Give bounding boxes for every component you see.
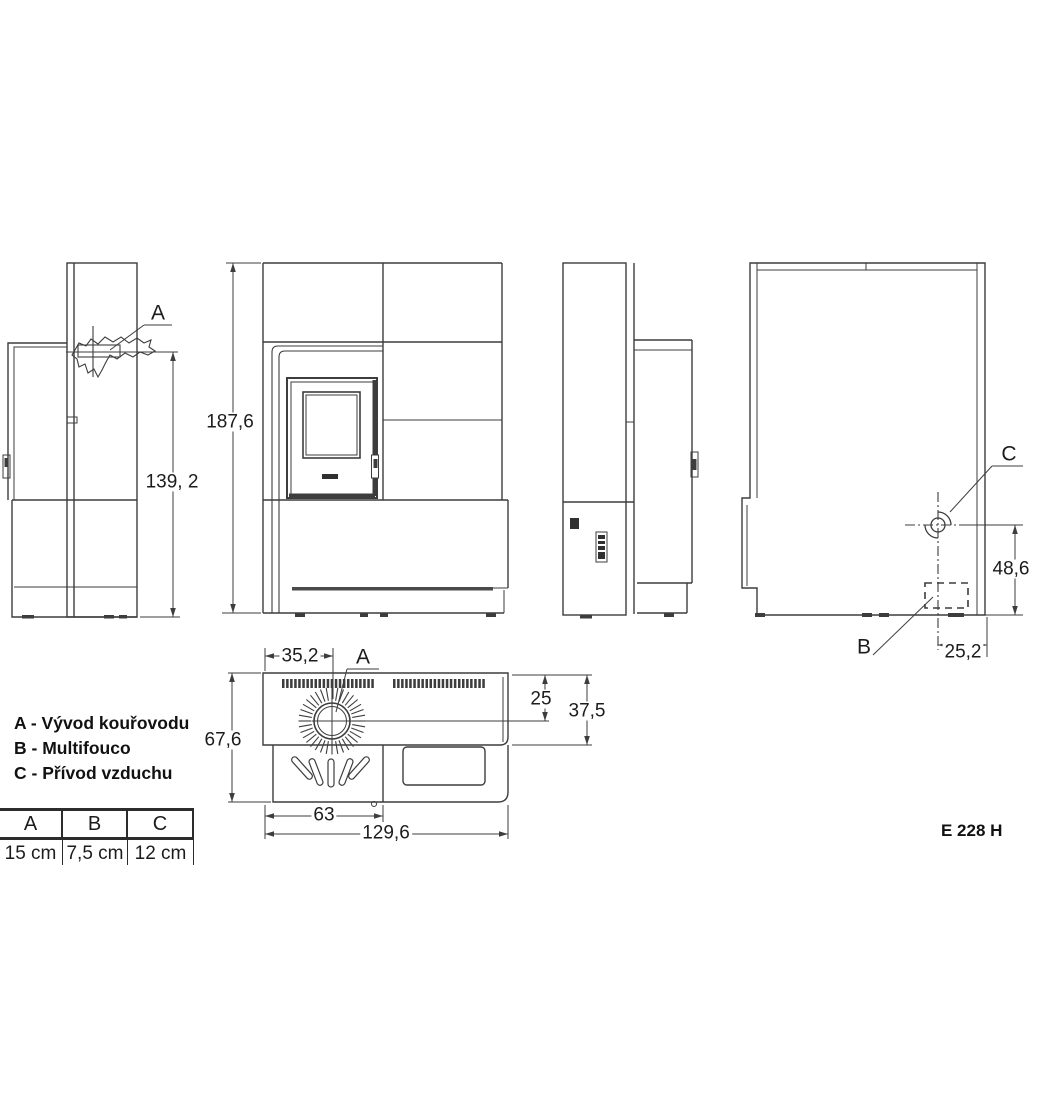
dim-front-width: 63 bbox=[311, 806, 336, 825]
dim-height-to-flue: 139, 2 bbox=[144, 473, 201, 492]
legend-item-a: A - Vývod kouřovodu bbox=[14, 711, 189, 736]
dim-flue-x: 35,2 bbox=[280, 647, 321, 666]
stove-door bbox=[287, 378, 379, 498]
technical-drawing-page: A 139, 2 187,6 C 48,6 B 25,2 35,2 A 25 3… bbox=[0, 0, 1040, 1120]
front-view bbox=[263, 263, 508, 617]
spec-value-a: 15 cm bbox=[0, 840, 63, 865]
dim-top-depth: 37,5 bbox=[567, 702, 608, 721]
spec-header-c: C bbox=[128, 808, 194, 840]
spec-header-a: A bbox=[0, 808, 63, 840]
dimension-lines bbox=[66, 263, 1023, 839]
chimney-column bbox=[67, 263, 137, 617]
door-window bbox=[303, 392, 360, 458]
spec-header-b: B bbox=[63, 808, 128, 840]
dim-inlet-offset: 25,2 bbox=[943, 643, 984, 662]
dim-inlet-height: 48,6 bbox=[991, 560, 1032, 579]
spec-table-value-row: 15 cm 7,5 cm 12 cm bbox=[0, 840, 194, 865]
callout-c-rear: C bbox=[1001, 444, 1016, 465]
hotplate-slots bbox=[290, 756, 370, 787]
rear-view bbox=[742, 263, 985, 650]
side-view-left bbox=[3, 263, 155, 619]
spec-table-header-row: A B C bbox=[0, 808, 194, 840]
dim-total-height: 187,6 bbox=[204, 413, 256, 432]
air-inlet-c bbox=[905, 492, 968, 650]
callout-b-rear: B bbox=[857, 637, 871, 658]
door-handle bbox=[322, 474, 338, 479]
legend-item-b: B - Multifouco bbox=[14, 736, 189, 761]
spec-value-c: 12 cm bbox=[128, 840, 194, 865]
side-view-right bbox=[563, 263, 698, 619]
multifouco-knockout-b bbox=[925, 583, 968, 608]
dim-total-width: 129,6 bbox=[360, 824, 412, 843]
legend-item-c: C - Přívod vzduchu bbox=[14, 761, 189, 786]
callout-a-side: A bbox=[151, 303, 165, 324]
legend: A - Vývod kouřovodu B - Multifouco C - P… bbox=[14, 711, 189, 786]
stove-technical-drawing bbox=[0, 0, 1040, 1120]
vent-slots-right bbox=[393, 679, 485, 688]
spec-table: A B C 15 cm 7,5 cm 12 cm bbox=[0, 808, 194, 865]
callout-a-top: A bbox=[356, 647, 370, 668]
dim-depth: 67,6 bbox=[203, 731, 244, 750]
top-view bbox=[263, 673, 508, 807]
power-switch bbox=[570, 518, 579, 529]
rear-recess-panel bbox=[403, 747, 485, 785]
feet bbox=[295, 614, 496, 618]
spec-value-b: 7,5 cm bbox=[63, 840, 128, 865]
model-label: E 228 H bbox=[941, 821, 1002, 841]
dim-flue-y: 25 bbox=[528, 690, 553, 709]
brand-plate bbox=[596, 532, 607, 562]
vent-slots-left bbox=[282, 679, 374, 688]
feet bbox=[580, 614, 674, 619]
